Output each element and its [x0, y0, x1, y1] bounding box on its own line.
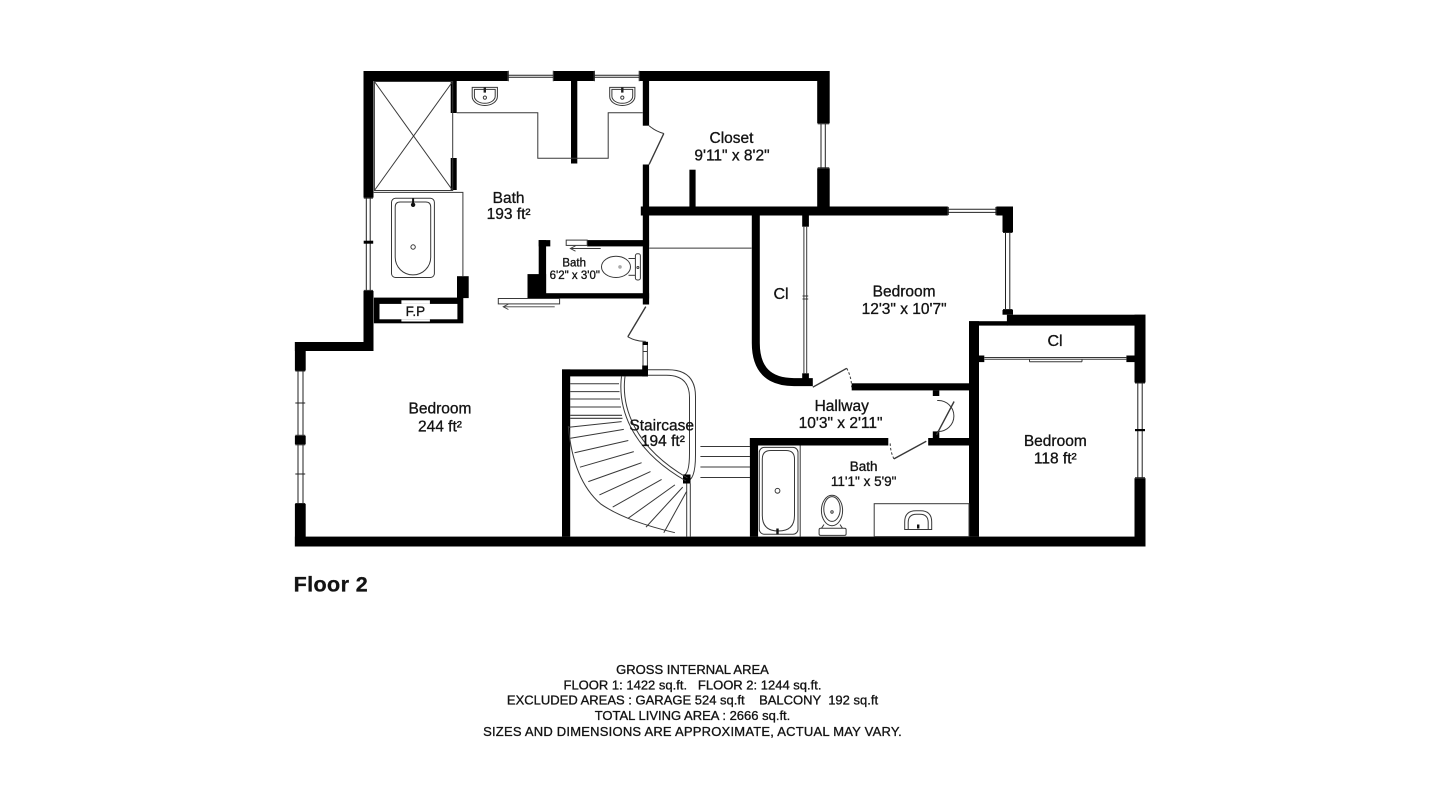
svg-text:Cl: Cl [773, 286, 788, 303]
svg-text:SIZES AND DIMENSIONS ARE APPRO: SIZES AND DIMENSIONS ARE APPROXIMATE, AC… [483, 724, 902, 739]
svg-text:Bedroom: Bedroom [873, 284, 936, 301]
svg-text:Bedroom: Bedroom [1024, 433, 1087, 450]
svg-text:11'1" x 5'9": 11'1" x 5'9" [831, 474, 897, 489]
svg-text:GROSS INTERNAL AREA: GROSS INTERNAL AREA [616, 662, 769, 677]
svg-text:Bath: Bath [562, 258, 586, 270]
svg-text:6'2" x 3'0": 6'2" x 3'0" [550, 270, 600, 282]
svg-text:244 ft²: 244 ft² [418, 419, 462, 436]
svg-text:Bath: Bath [493, 190, 525, 207]
svg-text:10'3" x 2'11": 10'3" x 2'11" [799, 415, 883, 432]
svg-text:9'11" x 8'2": 9'11" x 8'2" [694, 148, 769, 165]
svg-text:FLOOR 1: 1422 sq.ft. FLOOR 2: FLOOR 1: 1422 sq.ft. FLOOR 2: 1244 sq.ft… [564, 677, 822, 692]
svg-text:194 ft²: 194 ft² [641, 433, 685, 450]
svg-text:Hallway: Hallway [815, 398, 870, 415]
svg-text:TOTAL LIVING AREA : 2666 sq.ft: TOTAL LIVING AREA : 2666 sq.ft. [595, 708, 791, 723]
svg-text:Floor 2: Floor 2 [294, 572, 368, 596]
svg-text:118 ft²: 118 ft² [1034, 450, 1077, 467]
svg-text:F.P: F.P [406, 304, 426, 319]
svg-text:Bedroom: Bedroom [409, 400, 472, 417]
svg-text:Closet: Closet [710, 130, 755, 147]
svg-text:193 ft²: 193 ft² [487, 206, 531, 223]
svg-text:EXCLUDED AREAS : GARAGE 524 sq: EXCLUDED AREAS : GARAGE 524 sq.ft BALCON… [507, 693, 879, 708]
svg-text:Bath: Bath [850, 459, 878, 474]
svg-text:Cl: Cl [1047, 333, 1062, 350]
svg-text:12'3" x 10'7": 12'3" x 10'7" [862, 301, 947, 318]
